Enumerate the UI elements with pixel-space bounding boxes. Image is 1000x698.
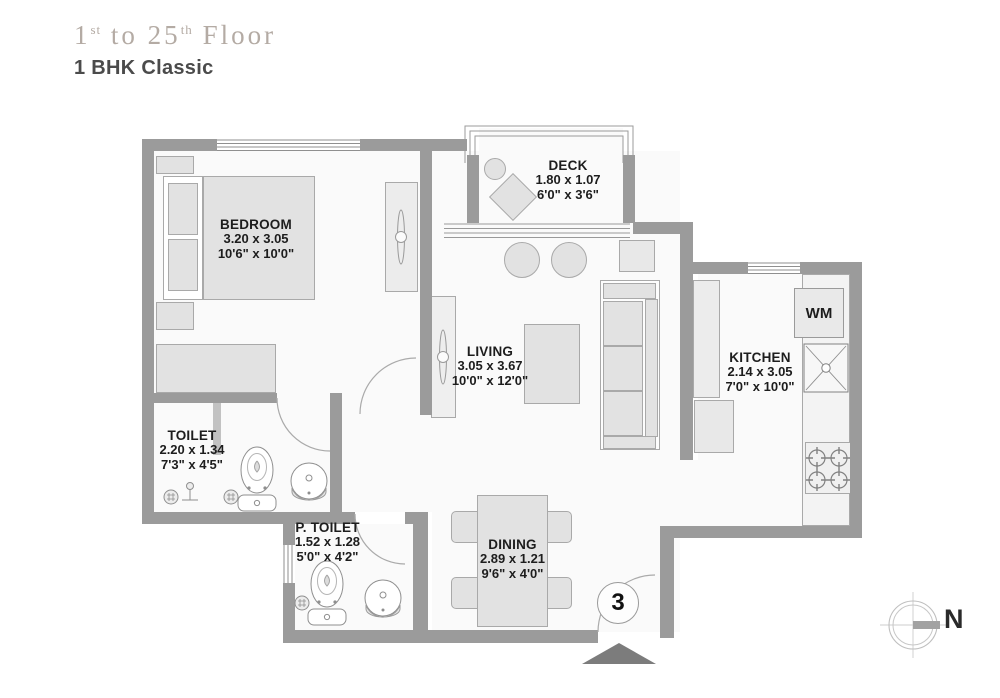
- wall-kitchen-top-right: [800, 262, 850, 274]
- north-arrow-icon: [913, 621, 940, 629]
- p-toilet-dim-m: 1.52 x 1.28: [265, 535, 390, 550]
- living-dim-m: 3.05 x 3.67: [420, 359, 560, 374]
- deck-label: DECK 1.80 x 1.07 6'0" x 3'6": [500, 158, 636, 202]
- deck-pillar-left: [467, 155, 479, 223]
- wall-toilet-top: [142, 393, 277, 403]
- refrigerator: [694, 400, 734, 453]
- wall-ptoilet-right: [413, 512, 428, 638]
- north-compass-icon: [880, 592, 946, 658]
- unit-number: 3: [611, 589, 624, 617]
- side-table: [619, 240, 655, 272]
- bedroom-name: BEDROOM: [186, 217, 326, 232]
- north-label: N: [944, 604, 964, 635]
- deck-name: DECK: [500, 158, 636, 173]
- living-label: LIVING 3.05 x 3.67 10'0" x 12'0": [420, 344, 560, 388]
- toilet-dim-m: 2.20 x 1.34: [132, 443, 252, 458]
- wall-kitchen-right: [850, 262, 862, 538]
- bedside-table-bottom: [156, 302, 194, 330]
- p-toilet-dim-ft: 5'0" x 4'2": [265, 550, 390, 565]
- unit-type-title: 1 BHK Classic: [74, 57, 214, 80]
- wardrobe: [385, 182, 418, 292]
- floor-sup-st: st: [91, 22, 102, 37]
- sofa-cushion: [603, 301, 643, 346]
- toilet-label: TOILET 2.20 x 1.34 7'3" x 4'5": [132, 428, 252, 472]
- kitchen-window-icon: [748, 262, 800, 274]
- sofa-cushion: [603, 346, 643, 391]
- wall-toilet-right: [330, 393, 342, 512]
- p-toilet-name: P. TOILET: [265, 520, 390, 535]
- bedroom-label: BEDROOM 3.20 x 3.05 10'6" x 10'0": [186, 217, 326, 261]
- stove: [805, 442, 851, 494]
- living-dim-ft: 10'0" x 12'0": [420, 374, 560, 389]
- floor-prefix: 1: [74, 20, 91, 50]
- dining-name: DINING: [445, 537, 580, 552]
- bedside-table-top: [156, 156, 194, 174]
- toilet-dim-ft: 7'3" x 4'5": [132, 458, 252, 473]
- wall-kitchen-bottom: [660, 526, 862, 538]
- floor-range-title: 1st to 25th Floor: [74, 20, 276, 51]
- sofa-armrest-top: [603, 283, 656, 299]
- wall-deck-stub: [633, 222, 693, 234]
- wall-living-kitchen: [680, 222, 693, 460]
- washing-machine-label: WM: [806, 305, 833, 322]
- wall-kitchen-top-left: [692, 262, 748, 274]
- dresser: [156, 344, 276, 393]
- p-toilet-label: P. TOILET 1.52 x 1.28 5'0" x 4'2": [265, 520, 390, 564]
- kitchen-name: KITCHEN: [690, 350, 830, 365]
- toilet-name: TOILET: [132, 428, 252, 443]
- living-name: LIVING: [420, 344, 560, 359]
- bedroom-window-icon: [217, 139, 360, 151]
- deck-dim-m: 1.80 x 1.07: [500, 173, 636, 188]
- passage-floor: [342, 395, 420, 512]
- floor-suffix: Floor: [193, 20, 276, 50]
- washing-machine-box: WM: [794, 288, 844, 338]
- wall-bottom: [283, 630, 598, 643]
- dining-dim-m: 2.89 x 1.21: [445, 552, 580, 567]
- floor-mid: to 25: [101, 20, 181, 50]
- wall-entry-right: [660, 526, 674, 638]
- pouf: [551, 242, 587, 278]
- kitchen-dim-ft: 7'0" x 10'0": [690, 380, 830, 395]
- dining-dim-ft: 9'6" x 4'0": [445, 567, 580, 582]
- pouf: [504, 242, 540, 278]
- kitchen-dim-m: 2.14 x 3.05: [690, 365, 830, 380]
- sofa-armrest-bottom: [603, 436, 656, 449]
- bedroom-dim-ft: 10'6" x 10'0": [186, 247, 326, 262]
- kitchen-label: KITCHEN 2.14 x 3.05 7'0" x 10'0": [690, 350, 830, 394]
- entrance-marker-icon: [582, 643, 656, 664]
- dining-label: DINING 2.89 x 1.21 9'6" x 4'0": [445, 537, 580, 581]
- bedroom-dim-m: 3.20 x 3.05: [186, 232, 326, 247]
- floor-sup-th: th: [181, 22, 193, 37]
- passage-opening-floor: [420, 415, 432, 512]
- unit-number-badge: 3: [597, 582, 639, 624]
- sofa-backrest: [645, 299, 658, 437]
- wall-bedroom-top-right: [360, 139, 467, 151]
- sofa-cushion: [603, 391, 643, 436]
- deck-dim-ft: 6'0" x 3'6": [500, 188, 636, 203]
